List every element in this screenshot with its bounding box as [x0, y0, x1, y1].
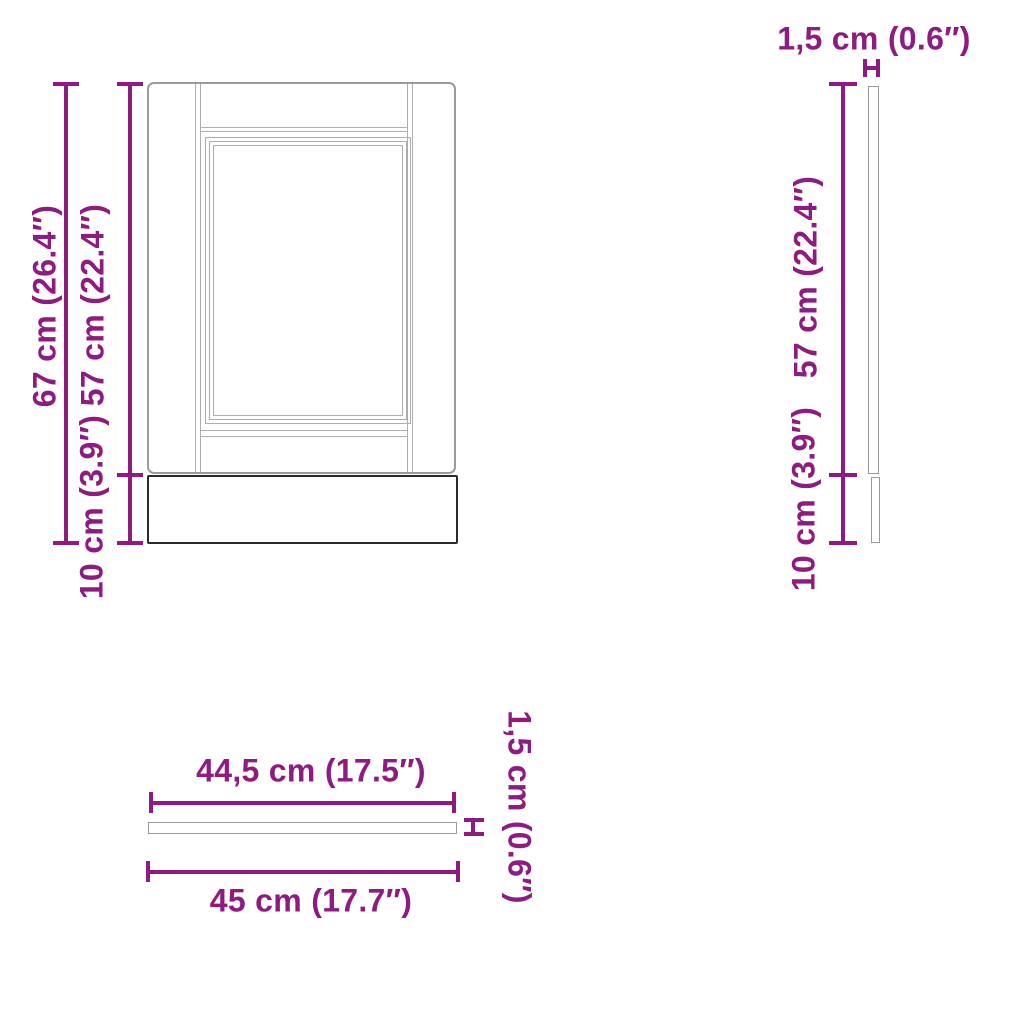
front-door-bottom-rail-lines: [201, 430, 407, 437]
top-total-width-dim-tick-right: [456, 861, 460, 882]
product-dimension-diagram: 67 cm (26.4″) 57 cm (22.4″) 10 cm (3.9″)…: [0, 0, 1024, 1024]
side-plinth-height-label: 10 cm (3.9″): [786, 407, 823, 591]
front-door-top-rail-lines: [201, 127, 407, 132]
side-height-dim-tick-middle: [829, 473, 857, 477]
front-split-height-dim-tick-middle: [117, 473, 143, 477]
top-front-width-label: 44,5 cm (17.5″): [196, 753, 426, 790]
front-panel-frame-inner: [213, 145, 403, 416]
top-thickness-marker-crossbar: [471, 818, 475, 836]
side-height-dim-tick-top: [829, 82, 857, 86]
front-split-height-dim-tick-top: [117, 82, 143, 86]
front-split-height-dim-tick-bottom: [117, 541, 143, 545]
front-total-height-dim-tick-top: [53, 82, 79, 86]
front-door-left-stile-lines: [195, 84, 201, 472]
top-thickness-label: 1,5 cm (0.6″): [501, 710, 538, 904]
front-plinth-height-label: 10 cm (3.9″): [74, 415, 111, 599]
top-front-width-dim-tick-right: [452, 792, 456, 813]
top-total-width-label: 45 cm (17.7″): [210, 883, 412, 920]
front-total-height-dim-line: [64, 82, 68, 545]
top-front-width-dim-line: [151, 801, 454, 805]
side-door-height-label: 57 cm (22.4″): [788, 176, 825, 378]
side-door-panel-bar: [868, 86, 879, 474]
front-total-height-label: 67 cm (26.4″): [27, 205, 64, 407]
side-plinth-panel-bar: [871, 477, 880, 543]
side-thickness-marker-crossbar: [863, 66, 880, 70]
top-front-width-dim-tick-left: [149, 792, 153, 813]
side-thickness-label: 1,5 cm (0.6″): [777, 21, 971, 58]
front-plinth-outline: [147, 475, 458, 544]
top-panel-bar: [148, 822, 457, 834]
top-total-width-dim-tick-left: [146, 861, 150, 882]
top-total-width-dim-line: [148, 870, 458, 874]
front-door-height-label: 57 cm (22.4″): [75, 204, 112, 406]
side-height-dim-tick-bottom: [829, 541, 857, 545]
